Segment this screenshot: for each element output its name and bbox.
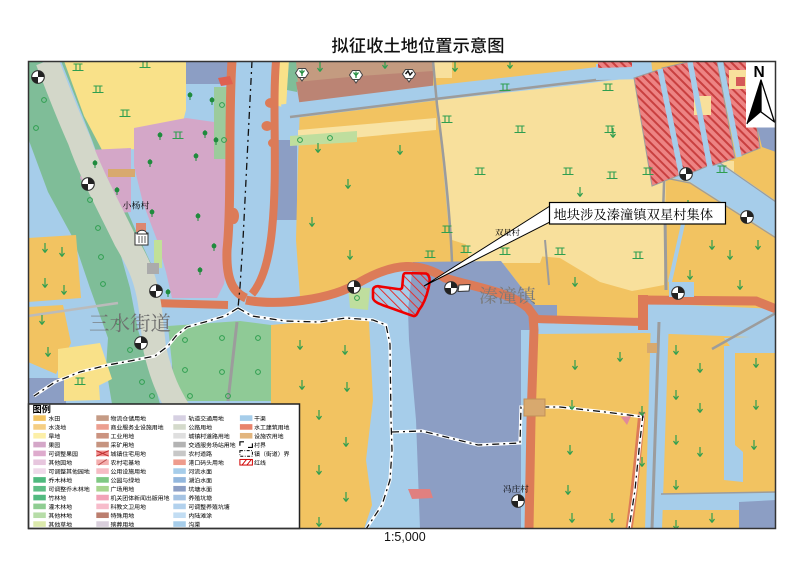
svg-text:N: N — [754, 64, 765, 81]
svg-text:1:5,000: 1:5,000 — [384, 530, 426, 544]
